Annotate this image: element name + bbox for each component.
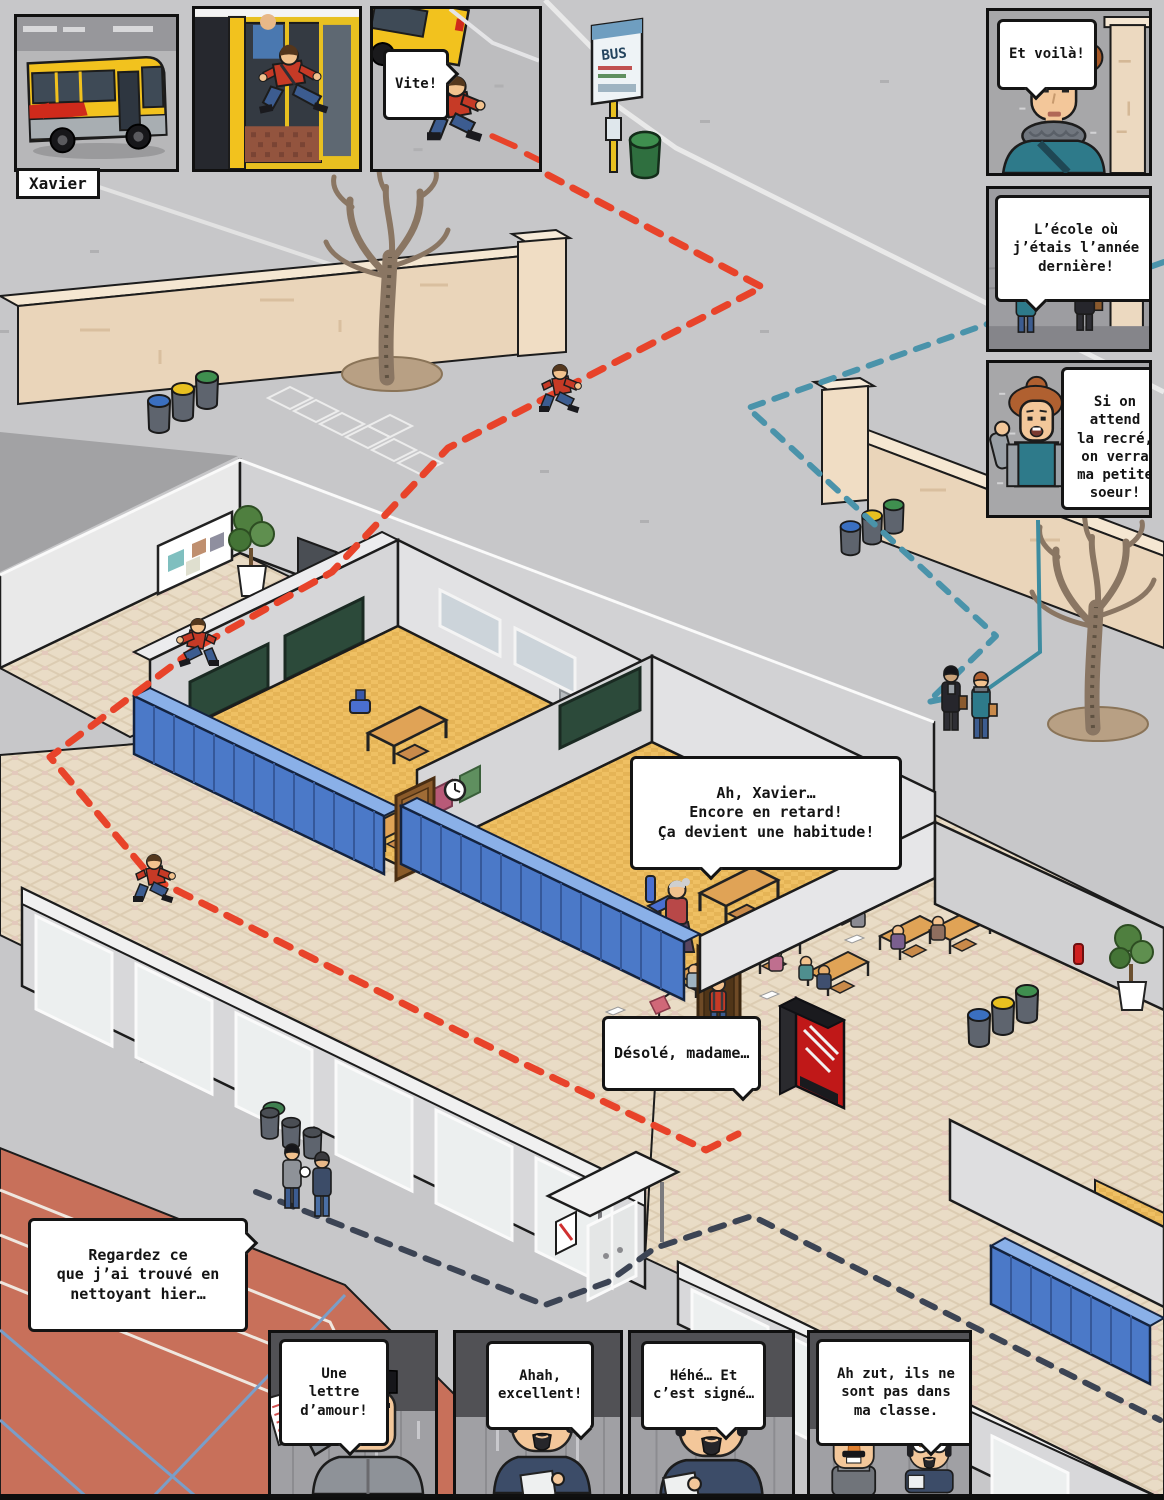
retard-bubble: Ah, Xavier… Encore en retard! Ça devient… [630, 756, 902, 870]
signe-text: Héhé… Et c’est signé… [653, 1368, 754, 1402]
green-litter-bin [630, 132, 660, 178]
regardez-bubble: Regardez ce que j’ai trouvé en nettoyant… [28, 1218, 248, 1332]
xavier-name-caption: Xavier [16, 168, 100, 199]
lettre-bubble: Une lettre d’amour! [279, 1339, 389, 1446]
wall-clock [445, 780, 465, 800]
panel-vite: Vite! [370, 6, 542, 172]
bus-operator-logo: TEC [51, 105, 73, 120]
classe-text: Ah zut, ils ne sont pas dans ma classe. [837, 1366, 955, 1418]
bus-exit-illustration [195, 9, 359, 169]
panel-recre: Si on attend la recré, on verra ma petit… [986, 360, 1152, 518]
panel-lettre: Une lettre d’amour! [268, 1330, 438, 1497]
vite-bubble-text: Vite! [395, 76, 437, 92]
lettre-text: Une lettre d’amour! [300, 1366, 367, 1418]
panel-et-voila: Et voilà! [986, 8, 1152, 176]
excellent-bubble: Ahah, excellent! [486, 1341, 594, 1430]
panel-excellent: Ahah, excellent! [453, 1330, 623, 1497]
excellent-text: Ahah, excellent! [498, 1368, 582, 1402]
recre-text: Si on attend la recré, on verra ma petit… [1077, 394, 1152, 501]
ecole-bubble: L’école où j’étais l’année dernière! [995, 195, 1152, 302]
retard-text: Ah, Xavier… Encore en retard! Ça devient… [658, 784, 875, 841]
recre-bubble: Si on attend la recré, on verra ma petit… [1061, 367, 1152, 510]
panel-signe: Héhé… Et c’est signé… [628, 1330, 795, 1497]
xavier-name-label: Xavier [29, 174, 87, 193]
ecole-text: L’école où j’étais l’année dernière! [1013, 222, 1139, 274]
panel-bus-exit [192, 6, 362, 172]
vite-bubble: Vite! [383, 49, 449, 120]
bus-stop-sign-text: BUS [601, 45, 628, 64]
desole-text: Désolé, madame… [614, 1044, 749, 1062]
et-voila-bubble: Et voilà! [997, 19, 1097, 90]
desole-bubble: Désolé, madame… [602, 1016, 761, 1091]
signe-bubble: Héhé… Et c’est signé… [641, 1341, 766, 1430]
fire-extinguisher-right [1074, 944, 1083, 964]
panel-classe: Ah zut, ils ne sont pas dans ma classe. [807, 1330, 972, 1497]
comic-page: BUS [0, 0, 1164, 1500]
bus-illustration: TEC [17, 17, 176, 169]
regardez-text: Regardez ce que j’ai trouvé en nettoyant… [57, 1246, 220, 1303]
classe-bubble: Ah zut, ils ne sont pas dans ma classe. [816, 1339, 972, 1446]
panel-bus: TEC [14, 14, 179, 172]
et-voila-text: Et voilà! [1009, 46, 1085, 62]
panel-ecole: L’école où j’étais l’année dernière! [986, 186, 1152, 352]
